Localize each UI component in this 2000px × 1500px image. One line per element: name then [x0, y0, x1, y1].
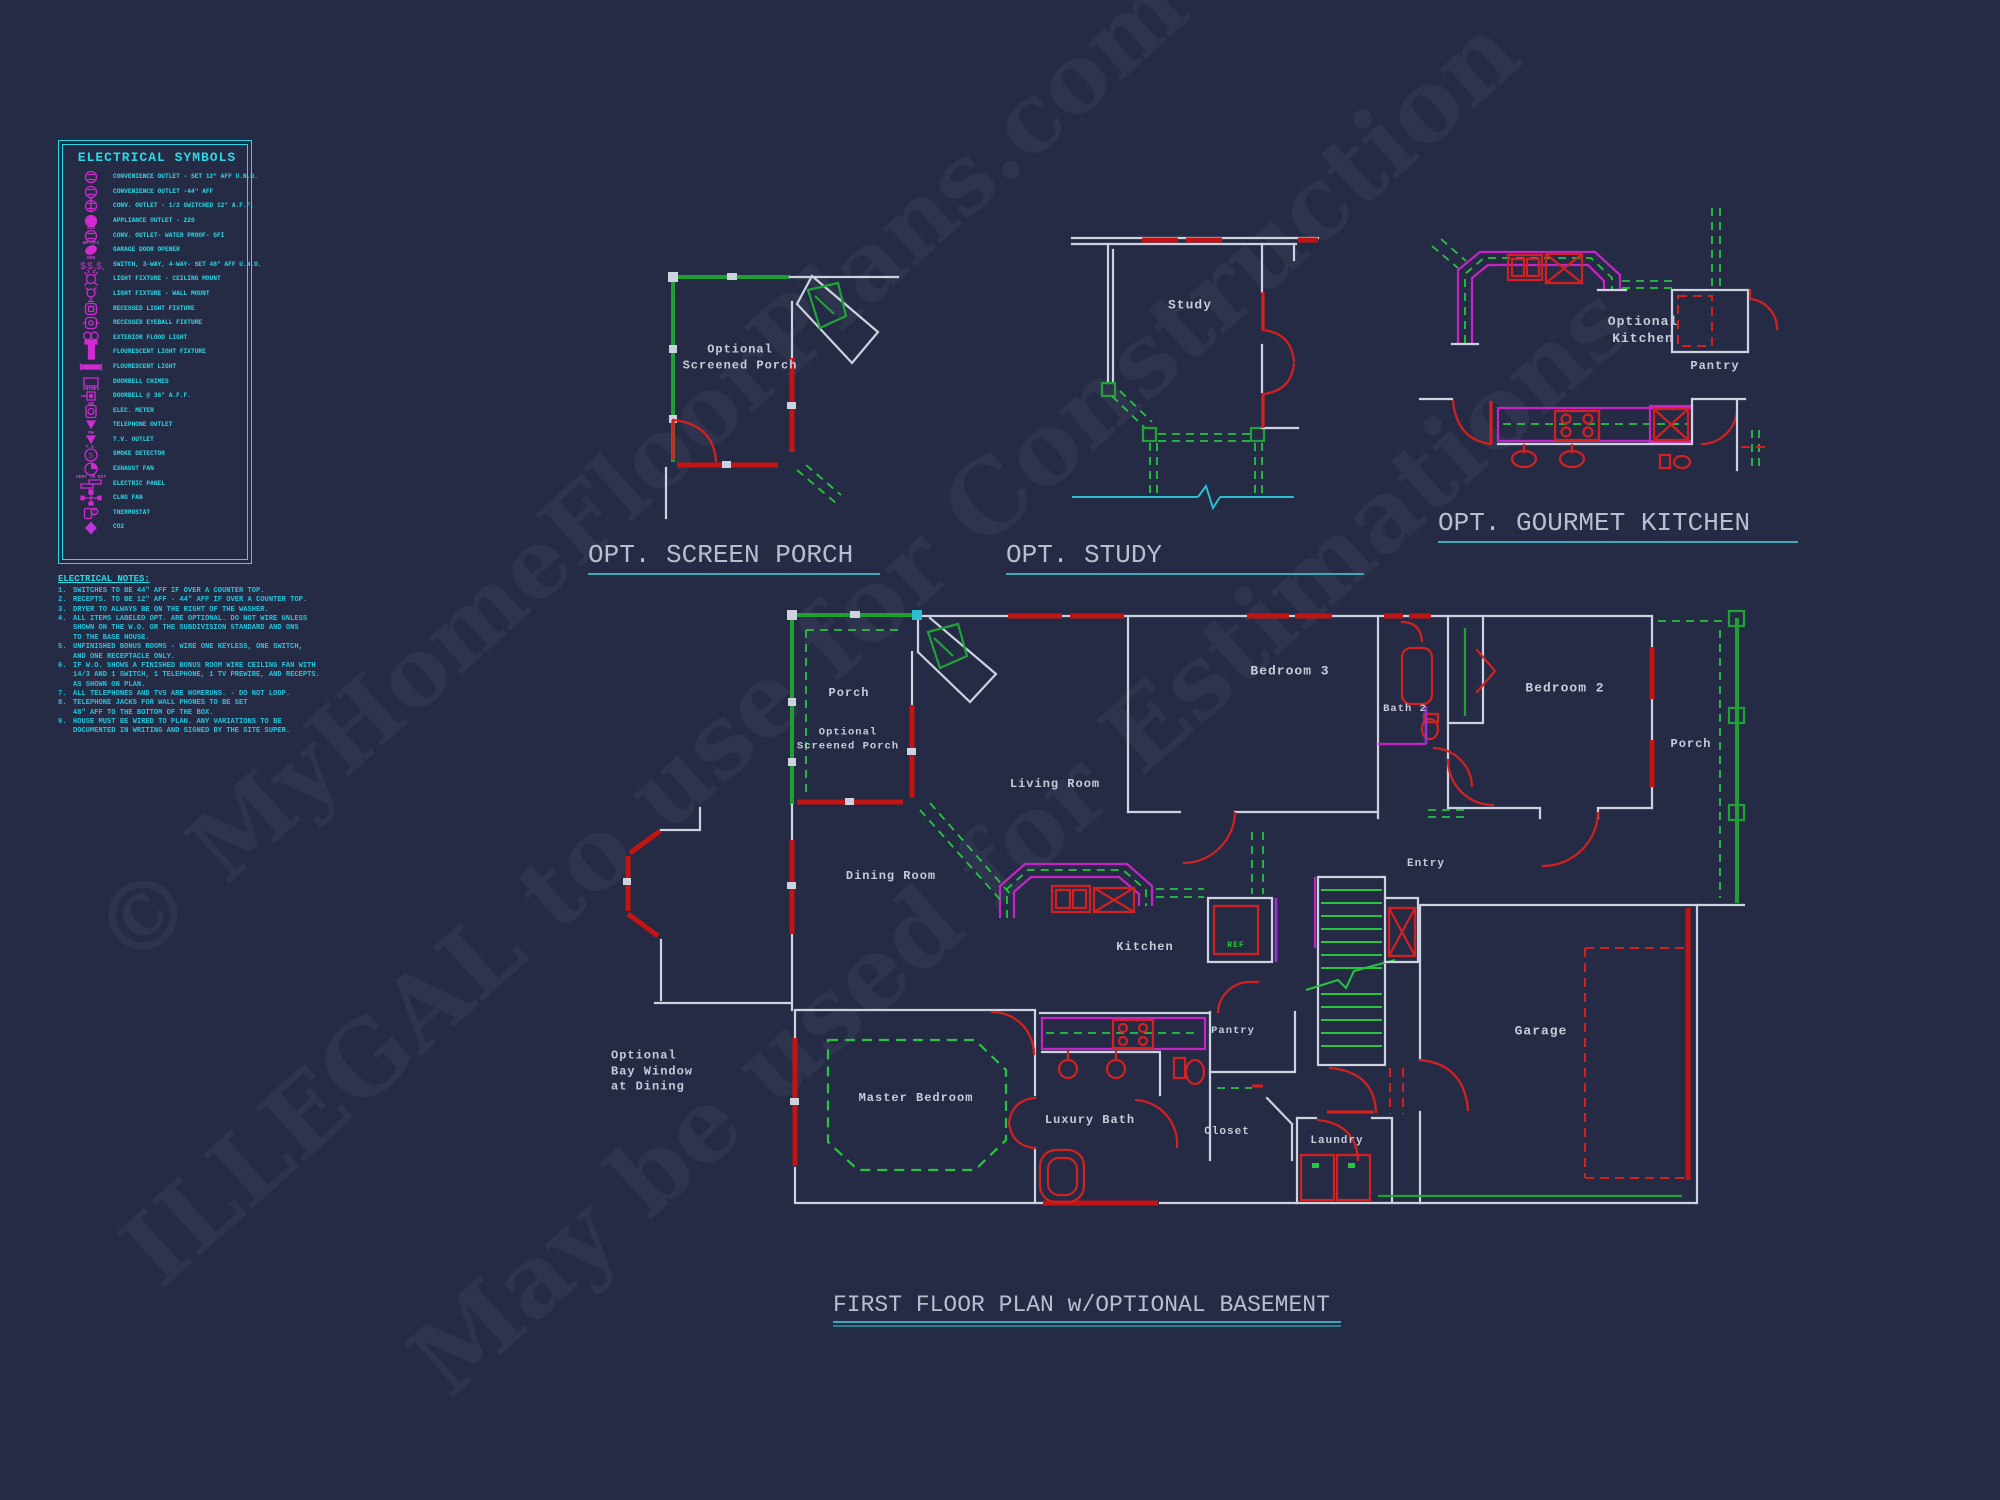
- smoke-icon: S: [69, 447, 113, 463]
- room-label: Optional Bay Window at Dining: [611, 1049, 693, 1096]
- legend-item: CLNG FAN: [69, 491, 245, 506]
- room-label: Kitchen: [1116, 940, 1173, 956]
- electrical-note: 6.IF W.O. SHOWS A FINISHED BONUS ROOM WI…: [58, 662, 358, 690]
- legend-item-label: EXHAUST FAN: [113, 466, 154, 472]
- outlet-filled-icon: 220: [69, 213, 113, 229]
- legend-item-label: EXTERIOR FLOOD LIGHT: [113, 335, 187, 341]
- plan-title-text: OPT. STUDY: [1006, 540, 1162, 570]
- legend-item-label: RECESSED EYEBALL FIXTURE: [113, 320, 202, 326]
- note-text: UNFINISHED BONUS ROOMS - WIRE ONE KEYLES…: [73, 643, 303, 662]
- legend-item-label: T.V. OUTLET: [113, 437, 154, 443]
- legend-item-label: GARAGE DOOR OPENER: [113, 247, 180, 253]
- switches-icon: $$3$43 4: [69, 257, 113, 273]
- title-underline: [1438, 541, 1798, 543]
- note-text: ALL TELEPHONES AND TVS ARE HOMERUNS. - D…: [73, 690, 290, 699]
- fluor-vert-icon: [69, 344, 113, 360]
- legend-item-label: ELECTRIC PANEL: [113, 481, 165, 487]
- legend-item: FLOURESCENT LIGHT: [69, 360, 245, 375]
- room-label: Entry: [1407, 857, 1445, 871]
- legend-item: VENT TO EXTEXHAUST FAN: [69, 462, 245, 477]
- title-underline: [833, 1325, 1341, 1327]
- legend-item: ACONVENIENCE OUTLET -44" AFF: [69, 185, 245, 200]
- note-number: 9.: [58, 718, 73, 737]
- legend-item: WP/GFICONV. OUTLET- WATER PROOF- GFI: [69, 228, 245, 243]
- plan-title: OPT. GOURMET KITCHEN: [1438, 508, 1798, 543]
- room-label: Laundry: [1310, 1134, 1363, 1148]
- electrical-symbols-legend: ELECTRICAL SYMBOLS CONVENIENCE OUTLET - …: [58, 140, 252, 564]
- ceiling-fan-icon: [69, 490, 113, 506]
- plan-title-text: OPT. SCREEN PORCH: [588, 540, 853, 570]
- legend-item: ELEC. METER: [69, 404, 245, 419]
- room-label: Bedroom 2: [1525, 681, 1604, 698]
- room-label: Closet: [1204, 1125, 1250, 1139]
- legend-item: EPELECTRIC PANEL: [69, 476, 245, 491]
- legend-item: $$3$43 4SWITCH, 3-WAY, 4-WAY- SET 48" AF…: [69, 258, 245, 273]
- note-text: RECEPTS. TO BE 12" AFF - 44" AFF IF OVER…: [73, 596, 307, 605]
- legend-item: GDOGARAGE DOOR OPENER: [69, 243, 245, 258]
- note-number: 7.: [58, 690, 73, 699]
- legend-item: 220APPLIANCE OUTLET - 220: [69, 214, 245, 229]
- room-label: Optional Screened Porch: [797, 726, 899, 753]
- note-number: 4.: [58, 615, 73, 643]
- room-label: Garage: [1515, 1024, 1568, 1041]
- outlet-duplex-icon: [69, 169, 113, 185]
- note-text: DRYER TO ALWAYS BE ON THE RIGHT OF THE W…: [73, 606, 269, 615]
- legend-item-label: RECESSED LIGHT FIXTURE: [113, 306, 195, 312]
- room-label: Optional Screened Porch: [683, 342, 798, 373]
- legend-item-label: CONV. OUTLET- WATER PROOF- GFI: [113, 233, 224, 239]
- legend-item: TTHERMOSTAT: [69, 506, 245, 521]
- room-label: Study: [1168, 298, 1212, 315]
- legend-item: LIGHT FIXTURE - CEILING MOUNT: [69, 272, 245, 287]
- room-label: Living Room: [1010, 777, 1100, 793]
- legend-title: ELECTRICAL SYMBOLS: [69, 150, 245, 165]
- room-label: REF: [1227, 941, 1244, 951]
- legend-item-label: LIGHT FIXTURE - WALL MOUNT: [113, 291, 210, 297]
- title-underline: [1006, 573, 1364, 575]
- room-label: Porch: [1670, 737, 1711, 753]
- room-label: Bath 2: [1383, 703, 1427, 717]
- note-text: ALL ITEMS LABELED OPT. ARE OPTIONAL. DO …: [73, 615, 307, 643]
- notes-title: ELECTRICAL NOTES:: [58, 574, 358, 584]
- legend-item-label: TELEPHONE OUTLET: [113, 422, 172, 428]
- detail-opt-study: [1072, 238, 1318, 508]
- tel-icon: PH: [69, 417, 113, 433]
- chimes-icon: CHIMES: [69, 374, 113, 390]
- electrical-note: 5.UNFINISHED BONUS ROOMS - WIRE ONE KEYL…: [58, 643, 358, 662]
- legend-item: T.V.T.V. OUTLET: [69, 433, 245, 448]
- legend-item-label: FLOURESCENT LIGHT FIXTURE: [113, 349, 206, 355]
- detail-opt-gourmet-kitchen: [1420, 208, 1777, 472]
- note-number: 2.: [58, 596, 73, 605]
- room-label: Dining Room: [846, 869, 936, 885]
- eyeball-icon: [69, 315, 113, 331]
- title-underline: [833, 1321, 1341, 1323]
- note-text: HOUSE MUST BE WIRED TO PLAN. ANY VARIATI…: [73, 718, 290, 737]
- fluor-horiz-icon: [69, 359, 113, 375]
- legend-item: CONVENIENCE OUTLET - SET 12" AFF U.N.O.: [69, 170, 245, 185]
- legend-item: DBDOORBELL @ 36" A.F.F.: [69, 389, 245, 404]
- legend-item: FLOURESCENT LIGHT FIXTURE: [69, 345, 245, 360]
- legend-item-label: FLOURESCENT LIGHT: [113, 364, 176, 370]
- legend-border: ELECTRICAL SYMBOLS CONVENIENCE OUTLET - …: [62, 144, 248, 560]
- room-label: Bedroom 3: [1250, 664, 1329, 681]
- legend-item: CONV. OUTLET - 1/2 SWITCHED 12" A.F.F.: [69, 199, 245, 214]
- light-ceiling-icon: [69, 271, 113, 287]
- plan-title: OPT. SCREEN PORCH: [588, 540, 880, 575]
- note-number: 5.: [58, 643, 73, 662]
- legend-item-label: LIGHT FIXTURE - CEILING MOUNT: [113, 276, 221, 282]
- electrical-notes: ELECTRICAL NOTES: 1.SWITCHES TO BE 44" A…: [58, 574, 358, 737]
- legend-item: RECESSED EYEBALL FIXTURE: [69, 316, 245, 331]
- note-number: 8.: [58, 699, 73, 718]
- main-floor-plan: [623, 610, 1744, 1203]
- electrical-note: 9.HOUSE MUST BE WIRED TO PLAN. ANY VARIA…: [58, 718, 358, 737]
- legend-item-label: DOORBELL CHIMES: [113, 379, 169, 385]
- room-label: Pantry: [1211, 1025, 1255, 1039]
- legend-item: PHTELEPHONE OUTLET: [69, 418, 245, 433]
- detail-opt-screen-porch: [666, 272, 898, 518]
- tv-icon: T.V.: [69, 432, 113, 448]
- legend-item-label: CONVENIENCE OUTLET - SET 12" AFF U.N.O.: [113, 174, 258, 180]
- outlet-gdo-icon: GDO: [69, 242, 113, 258]
- note-text: IF W.O. SHOWS A FINISHED BONUS ROOM WIRE…: [73, 662, 320, 690]
- outlet-half-icon: [69, 198, 113, 214]
- meter-icon: [69, 403, 113, 419]
- note-number: 3.: [58, 606, 73, 615]
- plan-title-text: OPT. GOURMET KITCHEN: [1438, 508, 1750, 538]
- room-label: Master Bedroom: [859, 1091, 974, 1107]
- note-text: TELEPHONE JACKS FOR WALL PHONES TO BE SE…: [73, 699, 248, 718]
- flood-icon: [69, 330, 113, 346]
- room-label: Luxury Bath: [1045, 1113, 1135, 1129]
- electrical-note: 1.SWITCHES TO BE 44" AFF IF OVER A COUNT…: [58, 587, 358, 596]
- room-label: Pantry: [1690, 359, 1739, 375]
- legend-item-label: CO2: [113, 524, 124, 530]
- room-label: Porch: [828, 686, 869, 702]
- legend-item-label: SWITCH, 3-WAY, 4-WAY- SET 48" AFF U.N.O.: [113, 262, 262, 268]
- electrical-note: 7.ALL TELEPHONES AND TVS ARE HOMERUNS. -…: [58, 690, 358, 699]
- legend-item-label: THERMOSTAT: [113, 510, 150, 516]
- note-text: SWITCHES TO BE 44" AFF IF OVER A COUNTER…: [73, 587, 265, 596]
- light-wall-icon: [69, 286, 113, 302]
- thermostat-icon: T: [69, 505, 113, 521]
- svg-text:T: T: [93, 509, 97, 516]
- note-number: 1.: [58, 587, 73, 596]
- fan-icon: VENT TO EXT: [69, 461, 113, 477]
- electrical-note: 8.TELEPHONE JACKS FOR WALL PHONES TO BE …: [58, 699, 358, 718]
- legend-item: RECESSED LIGHT FIXTURE: [69, 301, 245, 316]
- plan-title: FIRST FLOOR PLAN w/OPTIONAL BASEMENT: [833, 1292, 1341, 1327]
- outlet-duplex-icon: A: [69, 184, 113, 200]
- legend-item-label: APPLIANCE OUTLET - 220: [113, 218, 195, 224]
- room-label: Optional Kitchen: [1608, 314, 1678, 348]
- doorbell-icon: DB: [69, 388, 113, 404]
- note-number: 6.: [58, 662, 73, 690]
- plan-title: OPT. STUDY: [1006, 540, 1364, 575]
- electrical-note: 4.ALL ITEMS LABELED OPT. ARE OPTIONAL. D…: [58, 615, 358, 643]
- legend-item-label: CONVENIENCE OUTLET -44" AFF: [113, 189, 213, 195]
- outlet-duplex-icon: WP/GFI: [69, 228, 113, 244]
- legend-item-label: CONV. OUTLET - 1/2 SWITCHED 12" A.F.F.: [113, 203, 254, 209]
- plan-title-text: FIRST FLOOR PLAN w/OPTIONAL BASEMENT: [833, 1292, 1330, 1318]
- legend-item: CHIMESDOORBELL CHIMES: [69, 374, 245, 389]
- electrical-note: 3.DRYER TO ALWAYS BE ON THE RIGHT OF THE…: [58, 606, 358, 615]
- legend-item: SSMOKE DETECTOR: [69, 447, 245, 462]
- legend-item-label: CLNG FAN: [113, 495, 143, 501]
- legend-item: LIGHT FIXTURE - WALL MOUNT: [69, 287, 245, 302]
- co2-icon: [69, 520, 113, 536]
- legend-item-label: SMOKE DETECTOR: [113, 451, 165, 457]
- legend-item: CO2: [69, 520, 245, 535]
- recessed-icon: [69, 301, 113, 317]
- svg-text:S: S: [89, 452, 94, 461]
- legend-item-label: ELEC. METER: [113, 408, 154, 414]
- legend-item-label: DOORBELL @ 36" A.F.F.: [113, 393, 191, 399]
- blueprint-canvas: © MyHomeFloorPlans.comILLEGAL to use for…: [0, 0, 2000, 1500]
- legend-item: EXTERIOR FLOOD LIGHT: [69, 331, 245, 346]
- panel-icon: EP: [69, 476, 113, 492]
- title-underline: [588, 573, 880, 575]
- electrical-note: 2.RECEPTS. TO BE 12" AFF - 44" AFF IF OV…: [58, 596, 358, 605]
